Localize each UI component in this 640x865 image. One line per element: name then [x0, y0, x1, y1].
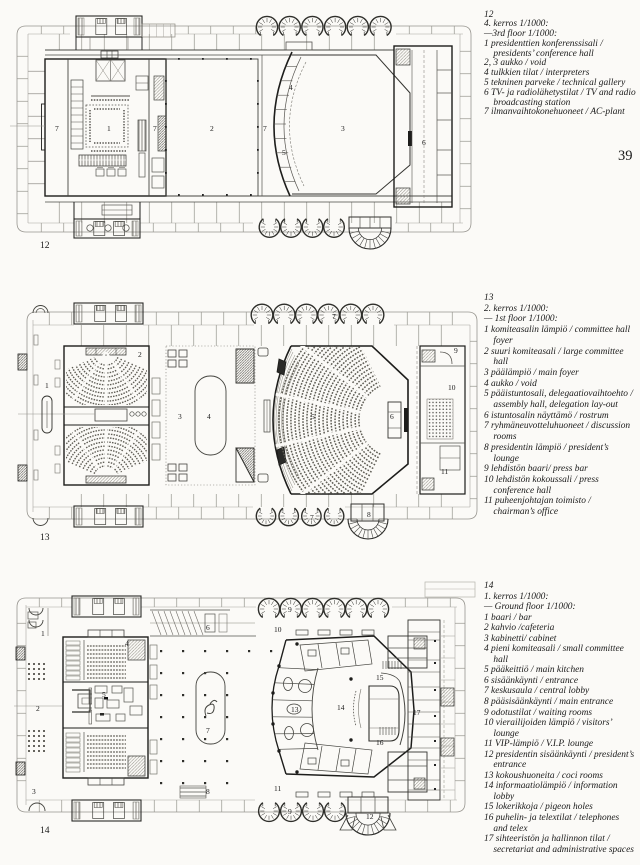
svg-text:6: 6 [206, 623, 210, 632]
svg-text:4: 4 [207, 412, 211, 421]
svg-text:2: 2 [210, 124, 214, 133]
svg-text:17: 17 [413, 708, 421, 717]
svg-text:16: 16 [376, 738, 384, 747]
svg-text:9: 9 [288, 605, 292, 614]
svg-text:11: 11 [274, 784, 281, 793]
svg-text:11: 11 [441, 467, 448, 476]
svg-text:10: 10 [448, 383, 456, 392]
svg-text:7: 7 [332, 312, 336, 321]
svg-text:7: 7 [310, 513, 314, 522]
svg-text:12: 12 [366, 812, 374, 821]
svg-text:7: 7 [206, 726, 210, 735]
svg-text:14: 14 [337, 703, 345, 712]
svg-text:4: 4 [125, 639, 129, 648]
svg-text:2: 2 [36, 704, 40, 713]
svg-text:6: 6 [390, 412, 394, 421]
svg-text:7: 7 [55, 124, 59, 133]
svg-text:5: 5 [102, 690, 106, 699]
svg-text:9: 9 [454, 346, 458, 355]
svg-text:1: 1 [107, 124, 111, 133]
svg-text:3: 3 [32, 787, 36, 796]
svg-text:1: 1 [41, 629, 45, 638]
svg-text:1: 1 [45, 381, 49, 390]
svg-text:7: 7 [153, 124, 157, 133]
svg-text:5: 5 [282, 148, 286, 157]
svg-text:6: 6 [422, 138, 426, 147]
svg-text:8: 8 [367, 510, 371, 519]
svg-text:9: 9 [288, 807, 292, 816]
svg-text:14: 14 [40, 825, 50, 836]
svg-text:12: 12 [40, 240, 50, 251]
svg-text:3: 3 [178, 412, 182, 421]
svg-text:13: 13 [291, 705, 299, 714]
svg-text:2: 2 [138, 350, 142, 359]
svg-text:10: 10 [274, 625, 282, 634]
svg-text:8: 8 [206, 787, 210, 796]
svg-text:3: 3 [341, 124, 345, 133]
svg-text:15: 15 [376, 673, 384, 682]
svg-text:7: 7 [263, 124, 267, 133]
svg-text:4: 4 [289, 83, 293, 92]
svg-text:5: 5 [311, 412, 315, 421]
svg-text:13: 13 [40, 532, 50, 543]
